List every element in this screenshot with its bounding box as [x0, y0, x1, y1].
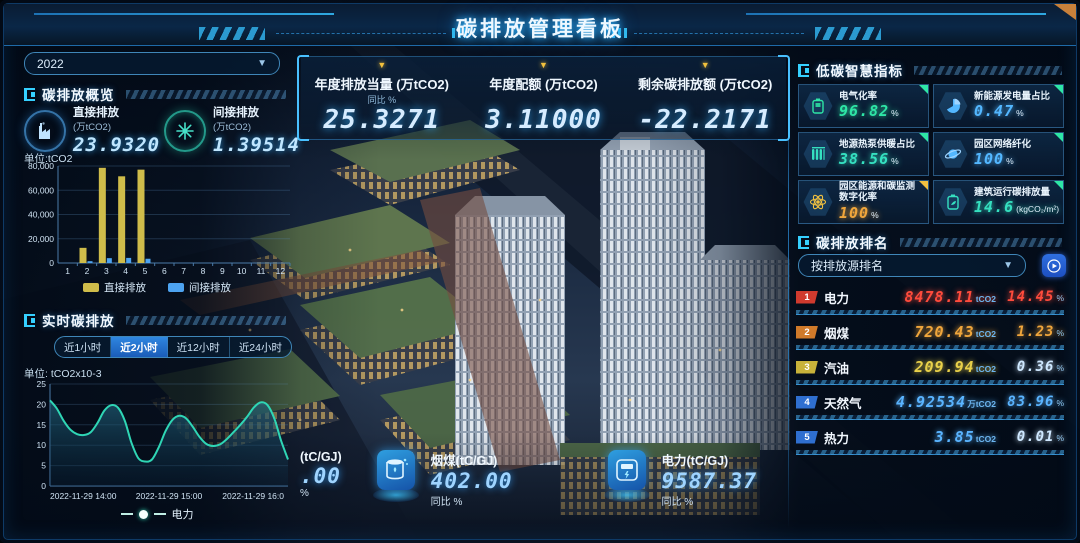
line-chart-legend: 电力 [16, 506, 298, 522]
svg-text:5: 5 [143, 266, 148, 276]
metric-value: 96.82% [839, 102, 899, 120]
play-button[interactable] [1042, 254, 1066, 277]
svg-text:15: 15 [37, 420, 47, 430]
svg-text:2022-11-29 14:00: 2022-11-29 14:00 [50, 491, 117, 501]
rank-percent: 0.36% [1002, 359, 1064, 375]
corner-accent [919, 133, 928, 142]
smart-metrics-title: 低碳智慧指标 [816, 60, 903, 80]
metric-label: 园区能源和碳监测数字化率 [839, 182, 924, 204]
rank-value: 209.94tCO2 [915, 358, 997, 376]
metric-text: 园区能源和碳监测数字化率 100% [839, 182, 924, 222]
metric-text: 地源热泵供暖占比 38.56% [839, 140, 915, 169]
atom-icon [803, 187, 833, 217]
ranking-row-line: 5 热力 3.85tCO2 0.01% [796, 426, 1064, 448]
svg-text:0: 0 [41, 481, 46, 491]
svg-text:8: 8 [201, 266, 206, 276]
legend-line [121, 513, 133, 515]
pie-chart-icon [938, 91, 968, 121]
smart-metric-card: 园区网络纤化 100% [933, 132, 1064, 176]
ranking-section-header: 碳排放排名 [798, 234, 1062, 250]
section-bracket-icon [798, 64, 809, 77]
rank-percent: 83.96% [1002, 394, 1064, 410]
ranking-select-value: 按排放源排名 [811, 257, 883, 274]
svg-text:4: 4 [123, 266, 128, 276]
time-range-tabs: 近1小时近2小时近12小时近24小时 [54, 336, 292, 358]
factor-kpi-value: .00 [300, 464, 342, 488]
ranking-row: 3 汽油 209.94tCO2 0.36% [796, 356, 1064, 391]
factor-kpi-sublabel: 同比 % [662, 493, 758, 508]
smart-metric-card: 建筑运行碳排放量 14.6(kgCO₂/m²) [933, 180, 1064, 224]
tab-1[interactable]: 近1小时 [55, 337, 111, 357]
ranking-source-select[interactable]: 按排放源排名 ▼ [798, 254, 1026, 277]
ranking-row-line: 2 烟煤 720.43tCO2 1.23% [796, 321, 1064, 343]
tab-4[interactable]: 近24小时 [230, 337, 291, 357]
ranking-separator-bar [796, 450, 1064, 455]
ranking-row: 4 天然气 4.92534万tCO2 83.96% [796, 391, 1064, 426]
metric-text: 新能源发电量占比 0.47% [974, 92, 1050, 121]
section-bracket-icon [24, 314, 35, 327]
rank-source-name: 汽油 [824, 358, 909, 377]
svg-text:2: 2 [85, 266, 90, 276]
legend-label: 电力 [172, 506, 194, 522]
legend-swatch [168, 283, 184, 292]
metric-label: 建筑运行碳排放量 [974, 188, 1059, 199]
ranking-separator-bar [796, 310, 1064, 315]
battery-icon [803, 91, 833, 121]
coal-drum-icon [370, 448, 422, 504]
kpi-value: -22.2171 [639, 105, 772, 135]
factor-kpi-sublabel: 同比 % [431, 493, 513, 508]
ranking-row-line: 4 天然气 4.92534万tCO2 83.96% [796, 391, 1064, 413]
page-title: 碳排放管理看板 [4, 13, 1076, 43]
factor-kpi-value: 9587.37 [662, 469, 758, 493]
rank-badge: 5 [796, 431, 818, 444]
smart-metric-card: 新能源发电量占比 0.47% [933, 84, 1064, 128]
metric-label: 电气化率 [839, 92, 899, 103]
rank-source-name: 电力 [824, 288, 898, 307]
svg-text:3: 3 [104, 266, 109, 276]
emission-factor-kpis: (tC/GJ) .00 % 烟煤(tC/GJ) 402.00 同比 % 电力(t… [296, 444, 757, 522]
kpi-label: 年度配额 (万tCO2) [489, 74, 597, 93]
realtime-section-header: 实时碳排放 [24, 312, 286, 328]
svg-text:7: 7 [181, 266, 186, 276]
factor-kpi-label: 烟煤(tC/GJ) [431, 450, 513, 469]
smart-metric-card: 电气化率 96.82% [798, 84, 929, 128]
tab-3[interactable]: 近12小时 [168, 337, 230, 357]
realtime-title: 实时碳排放 [42, 310, 115, 330]
svg-text:40,000: 40,000 [28, 210, 54, 220]
power-meter-icon [601, 448, 653, 504]
carbon-dashboard: 碳排放管理看板 2022 ▼ 碳排放概览 直接排放(万tCO2) 23.9320… [0, 0, 1080, 543]
kpi-value: 25.3271 [324, 105, 441, 135]
overview-stat: 间接排放(万tCO2) 1.39514 [164, 106, 294, 156]
rank-percent: 14.45% [1002, 289, 1064, 305]
ranking-row: 5 热力 3.85tCO2 0.01% [796, 426, 1064, 461]
stat-label: 直接排放(万tCO2) [73, 106, 160, 135]
kpi-sublabel: 同比 % [368, 93, 397, 104]
smart-metric-card: 地源热泵供暖占比 38.56% [798, 132, 929, 176]
factor-kpi-value: 402.00 [431, 469, 513, 493]
ranking-row: 1 电力 8478.11tCO2 14.45% [796, 286, 1064, 321]
hatch-decoration [900, 238, 1063, 247]
bar-indirect [88, 261, 93, 263]
triangle-marker-icon: ▼ [701, 61, 710, 70]
stat-value: 1.39514 [213, 135, 300, 156]
hatch-decoration [914, 66, 1062, 75]
factor-kpi-text: 电力(tC/GJ) 9587.37 同比 % [662, 444, 758, 508]
metric-value: 100% [839, 204, 924, 222]
smart-metric-card: 园区能源和碳监测数字化率 100% [798, 180, 929, 224]
svg-text:20,000: 20,000 [28, 234, 54, 244]
rank-source-name: 热力 [824, 428, 929, 447]
smart-metrics-grid: 电气化率 96.82% 新能源发电量占比 0.47% 地源热泵供暖占比 38.5… [798, 84, 1064, 224]
rank-percent: 0.01% [1002, 429, 1064, 445]
factory-icon [24, 110, 66, 152]
header-bar: 碳排放管理看板 [4, 4, 1076, 46]
svg-text:9: 9 [220, 266, 225, 276]
factor-kpi: (tC/GJ) .00 % [300, 444, 342, 499]
annual-kpi-banner: ▼ 年度排放当量 (万tCO2) 同比 % 25.3271▼ 年度配额 (万tC… [301, 56, 786, 140]
svg-text:2022-11-29 15:00: 2022-11-29 15:00 [136, 491, 203, 501]
rank-badge: 4 [796, 396, 818, 409]
ranking-row-line: 1 电力 8478.11tCO2 14.45% [796, 286, 1064, 308]
svg-text:80,000: 80,000 [28, 162, 54, 171]
emission-ranking-list: 1 电力 8478.11tCO2 14.45% 2 烟煤 720.43tCO2 … [796, 286, 1064, 461]
play-icon [1047, 259, 1061, 273]
rank-value: 3.85tCO2 [935, 428, 996, 446]
ranking-title: 碳排放排名 [816, 232, 889, 252]
bar-chart-legend: 直接排放间接排放 [16, 280, 298, 295]
year-select[interactable]: 2022 ▼ [24, 52, 280, 75]
smart-metrics-section-header: 低碳智慧指标 [798, 62, 1062, 78]
legend-label: 直接排放 [104, 280, 146, 295]
metric-value: 38.56% [839, 150, 915, 168]
hatch-decoration [126, 316, 287, 325]
stat-label: 间接排放(万tCO2) [213, 106, 300, 135]
year-select-value: 2022 [37, 57, 64, 71]
corner-accent [1054, 133, 1063, 142]
factor-kpi-sublabel: % [300, 488, 342, 499]
right-panel: 低碳智慧指标 电气化率 96.82% 新能源发电量占比 0.47% 地源热泵供暖… [794, 56, 1068, 526]
ranking-row-line: 3 汽油 209.94tCO2 0.36% [796, 356, 1064, 378]
svg-text:10: 10 [37, 440, 47, 450]
overview-title: 碳排放概览 [42, 84, 115, 104]
kpi-label: 年度排放当量 (万tCO2) [315, 74, 449, 93]
turbine-icon [164, 110, 206, 152]
svg-text:6: 6 [162, 266, 167, 276]
tab-2[interactable]: 近2小时 [111, 337, 167, 357]
rank-value: 8478.11tCO2 [904, 288, 996, 306]
kpi-label: 剩余碳排放额 (万tCO2) [638, 74, 772, 93]
bar-indirect [107, 258, 112, 263]
chevron-down-icon: ▼ [257, 58, 267, 69]
annual-kpi: ▼ 年度配额 (万tCO2) 3.11000 [463, 57, 625, 139]
rank-percent: 1.23% [1002, 324, 1064, 340]
legend-swatch [83, 283, 99, 292]
annual-kpi: ▼ 剩余碳排放额 (万tCO2) -22.2171 [624, 57, 786, 139]
kpi-value: 3.11000 [485, 105, 602, 135]
realtime-emissions-line-chart: 05101520252022-11-29 14:002022-11-29 15:… [18, 378, 296, 502]
svg-text:20: 20 [37, 399, 47, 409]
svg-text:25: 25 [37, 379, 47, 389]
legend-line [154, 513, 166, 515]
metric-label: 地源热泵供暖占比 [839, 140, 915, 151]
ranking-row: 2 烟煤 720.43tCO2 1.23% [796, 321, 1064, 356]
bar-direct [138, 170, 145, 263]
svg-text:2022-11-29 16:0: 2022-11-29 16:0 [222, 491, 284, 501]
left-panel: 2022 ▼ 碳排放概览 直接排放(万tCO2) 23.9320 间接排放(万t… [16, 48, 298, 534]
stat-text: 间接排放(万tCO2) 1.39514 [213, 106, 300, 156]
factor-kpi: 烟煤(tC/GJ) 402.00 同比 % [370, 444, 513, 508]
legend-label: 间接排放 [189, 280, 231, 295]
ranking-separator-bar [796, 415, 1064, 420]
stat-text: 直接排放(万tCO2) 23.9320 [73, 106, 160, 156]
overview-section-header: 碳排放概览 [24, 86, 286, 102]
metric-text: 电气化率 96.82% [839, 92, 899, 121]
svg-text:10: 10 [237, 266, 247, 276]
triangle-marker-icon: ▼ [539, 61, 548, 70]
metric-text: 建筑运行碳排放量 14.6(kgCO₂/m²) [974, 188, 1059, 217]
rank-value: 720.43tCO2 [915, 323, 997, 341]
bar-indirect [146, 259, 151, 263]
metric-label: 新能源发电量占比 [974, 92, 1050, 103]
metric-value: 100% [974, 150, 1031, 168]
ranking-separator-bar [796, 380, 1064, 385]
factor-kpi-label: 电力(tC/GJ) [662, 450, 758, 469]
svg-text:1: 1 [65, 266, 70, 276]
legend-item[interactable]: 直接排放 [83, 280, 146, 295]
battery-leaf-icon [938, 187, 968, 217]
svg-text:11: 11 [257, 266, 266, 276]
bar-direct [118, 176, 125, 263]
rank-source-name: 天然气 [824, 393, 890, 412]
section-bracket-icon [798, 236, 809, 249]
factor-kpi-text: (tC/GJ) .00 % [300, 444, 342, 499]
factor-kpi: 电力(tC/GJ) 9587.37 同比 % [601, 444, 758, 508]
svg-text:60,000: 60,000 [28, 185, 54, 195]
monthly-emissions-bar-chart: 020,00040,00060,00080,000123456789101112 [18, 162, 296, 278]
planet-icon [938, 139, 968, 169]
bar-indirect [126, 258, 131, 263]
legend-marker [139, 510, 148, 519]
metric-text: 园区网络纤化 100% [974, 140, 1031, 169]
rank-badge: 3 [796, 361, 818, 374]
factor-kpi-label: (tC/GJ) [300, 450, 342, 464]
svg-text:5: 5 [41, 461, 46, 471]
chevron-down-icon: ▼ [1003, 260, 1013, 271]
radiator-icon [803, 139, 833, 169]
rank-source-name: 烟煤 [824, 323, 909, 342]
hatch-decoration [126, 90, 287, 99]
ranking-separator-bar [796, 345, 1064, 350]
overview-stats: 直接排放(万tCO2) 23.9320 间接排放(万tCO2) 1.39514 [24, 106, 292, 156]
rank-value: 4.92534万tCO2 [896, 393, 996, 411]
overview-stat: 直接排放(万tCO2) 23.9320 [24, 106, 154, 156]
svg-text:12: 12 [276, 266, 286, 276]
factor-kpi-text: 烟煤(tC/GJ) 402.00 同比 % [431, 444, 513, 508]
svg-text:0: 0 [49, 258, 54, 268]
legend-item[interactable]: 间接排放 [168, 280, 231, 295]
annual-kpi: ▼ 年度排放当量 (万tCO2) 同比 % 25.3271 [301, 57, 463, 139]
metric-value: 0.47% [974, 102, 1050, 120]
section-bracket-icon [24, 88, 35, 101]
corner-accent [1054, 85, 1063, 94]
corner-accent [919, 85, 928, 94]
triangle-marker-icon: ▼ [377, 61, 386, 70]
rank-badge: 2 [796, 326, 818, 339]
bar-direct [80, 248, 87, 263]
metric-label: 园区网络纤化 [974, 140, 1031, 151]
stat-value: 23.9320 [73, 135, 160, 156]
bar-direct [99, 168, 106, 263]
metric-value: 14.6(kgCO₂/m²) [974, 198, 1059, 216]
rank-badge: 1 [796, 291, 818, 304]
